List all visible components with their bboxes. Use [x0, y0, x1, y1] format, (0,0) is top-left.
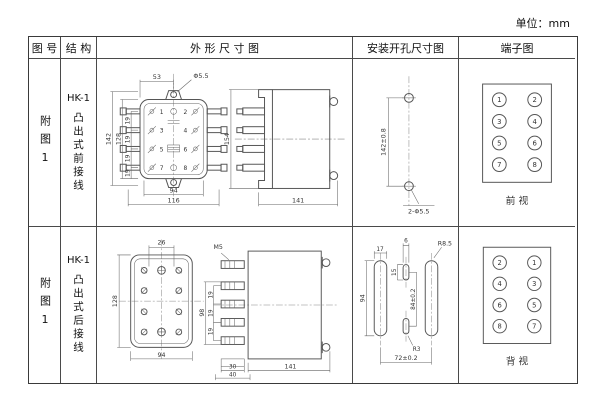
dim-r85: R8.5 — [437, 240, 451, 247]
dim-19-b: 19 — [125, 135, 131, 143]
col-header-outline: 外 形 尺 寸 图 — [97, 37, 353, 59]
front-view-row1: 1 3 5 7 2 4 6 8 — [104, 71, 227, 205]
side-dims-row2 — [203, 253, 329, 380]
bview-8: 8 — [498, 323, 502, 331]
tview-3: 3 — [497, 117, 501, 125]
outline-drawing-front-wiring: 1 3 5 7 2 4 6 8 — [98, 60, 352, 226]
dim-40: 40 — [229, 373, 237, 379]
dim-53: 53 — [152, 72, 160, 80]
front-view-row2: 26 128 94 — [112, 239, 204, 360]
terminal-cell-row2: 2 4 6 8 1 3 5 7 背 视 — [459, 227, 575, 383]
install-cell-row1: 142±0.8 2-Φ5.5 — [353, 59, 459, 227]
col-header-structure: 结 构 — [61, 37, 97, 59]
terminal-circles-rear — [493, 256, 541, 333]
bview-6: 6 — [498, 301, 502, 309]
tview-6: 6 — [533, 139, 537, 147]
structure-cell-row2: HK-1 凸出式后接线 — [61, 227, 97, 383]
dim-141-r2: 141 — [284, 364, 296, 371]
dim-19-d: 19 — [125, 169, 131, 177]
spec-table: 图 号 结 构 外 形 尺 寸 图 安装开孔尺寸图 端子图 附图1 HK-1 凸… — [28, 36, 578, 384]
install-dims-row1 — [386, 97, 434, 205]
side-screws — [329, 95, 337, 181]
structure-cell-row1: HK-1 凸出式前接线 — [61, 59, 97, 227]
term-no-2: 2 — [183, 109, 187, 115]
dim-17: 17 — [376, 247, 384, 253]
col-header-figure: 图 号 — [29, 37, 61, 59]
dim-6: 6 — [404, 238, 408, 244]
dim-19-c: 19 — [125, 154, 131, 162]
bview-1: 1 — [532, 259, 536, 267]
outline-cell-row1: 1 3 5 7 2 4 6 8 — [97, 59, 353, 227]
figure-no-row2: 附图1 — [37, 277, 53, 333]
terminal-diagram-front: 1 3 5 7 2 4 6 8 前 视 — [460, 60, 574, 226]
tview-2: 2 — [533, 96, 537, 104]
term-no-3: 3 — [159, 128, 163, 134]
bview-3: 3 — [532, 280, 536, 288]
tview-5: 5 — [497, 139, 501, 147]
bview-5: 5 — [532, 301, 536, 309]
bview-7: 7 — [532, 323, 536, 331]
side-pins — [236, 107, 264, 170]
figure-no-cell-row1: 附图1 — [29, 59, 61, 227]
figure-no-row1: 附图1 — [37, 115, 53, 171]
tview-1: 1 — [497, 96, 501, 104]
dim-94-r2: 94 — [157, 352, 165, 359]
install-drawing-rear-wiring: 17 6 15 94 84±0.2 R8.5 R3 72±0.2 — [354, 228, 458, 382]
bview-2: 2 — [498, 259, 502, 267]
dim-r3: R3 — [412, 347, 420, 353]
dim-26: 26 — [157, 239, 165, 246]
terminal-cell-row1: 1 3 5 7 2 4 6 8 前 视 — [459, 59, 575, 227]
install-cell-row2: 17 6 15 94 84±0.2 R8.5 R3 72±0.2 — [353, 227, 459, 383]
view-label-front: 前 视 — [506, 193, 529, 206]
term-no-8: 8 — [183, 166, 187, 172]
dim-141: 141 — [292, 196, 304, 204]
model-row2: HK-1 — [67, 255, 90, 266]
term-no-6: 6 — [183, 147, 187, 153]
structure-row2: 凸出式后接线 — [71, 274, 86, 355]
dim-19-g: 19 — [208, 327, 214, 335]
dim-19-a: 19 — [125, 116, 131, 124]
model-row1: HK-1 — [67, 93, 90, 104]
dim-128: 128 — [114, 132, 122, 144]
outline-drawing-rear-wiring: 26 128 94 — [98, 228, 352, 382]
dim-30: 30 — [229, 365, 237, 371]
terminal-diagram-rear: 2 4 6 8 1 3 5 7 背 视 — [460, 228, 574, 382]
dim-128-r2: 128 — [112, 295, 119, 307]
dim-15: 15 — [391, 268, 397, 276]
dim-m5: M5 — [213, 244, 222, 251]
dim-94: 94 — [169, 186, 177, 194]
install-dims-row2 — [364, 243, 441, 364]
view-label-rear: 背 视 — [506, 356, 529, 368]
term-no-1: 1 — [159, 109, 163, 115]
dim-19-e: 19 — [208, 291, 214, 299]
side-view-row1: 154 141 — [222, 89, 345, 206]
term-no-5: 5 — [159, 147, 163, 153]
col-header-install: 安装开孔尺寸图 — [353, 37, 459, 59]
rear-studs — [221, 261, 244, 345]
dim-72-tol: 72±0.2 — [394, 355, 417, 362]
tview-7: 7 — [497, 161, 501, 169]
dim-hole-dia: Φ5.5 — [193, 71, 208, 79]
term-no-7: 7 — [159, 166, 163, 172]
terminal-circles — [492, 92, 541, 171]
tview-8: 8 — [533, 161, 537, 169]
dim-142: 142 — [104, 132, 112, 144]
term-no-4: 4 — [183, 128, 187, 134]
dim-84-tol: 84±0.2 — [411, 288, 417, 310]
dim-94-slot: 94 — [359, 294, 366, 302]
col-header-terminal: 端子图 — [459, 37, 575, 59]
dim-142-tol: 142±0.8 — [379, 128, 387, 156]
drawing-sheet: 单位：mm 图 号 结 构 外 形 尺 寸 图 安装开孔尺寸图 端子图 附图1 … — [0, 0, 600, 400]
tview-4: 4 — [533, 117, 537, 125]
outline-cell-row2: 26 128 94 — [97, 227, 353, 383]
side-view-row2: M5 98 19 19 19 30 40 141 — [198, 244, 338, 380]
structure-row1: 凸出式前接线 — [71, 112, 86, 193]
bview-4: 4 — [498, 280, 502, 288]
figure-no-cell-row2: 附图1 — [29, 227, 61, 383]
dim-19-f: 19 — [208, 309, 214, 317]
dim-116: 116 — [167, 196, 179, 204]
slot-centerlines — [380, 253, 431, 345]
install-drawing-front-wiring: 142±0.8 2-Φ5.5 — [354, 60, 458, 226]
dim-154: 154 — [222, 132, 230, 144]
unit-label: 单位：mm — [516, 15, 570, 31]
hole-callout: 2-Φ5.5 — [408, 207, 429, 215]
dim-98: 98 — [198, 309, 205, 317]
